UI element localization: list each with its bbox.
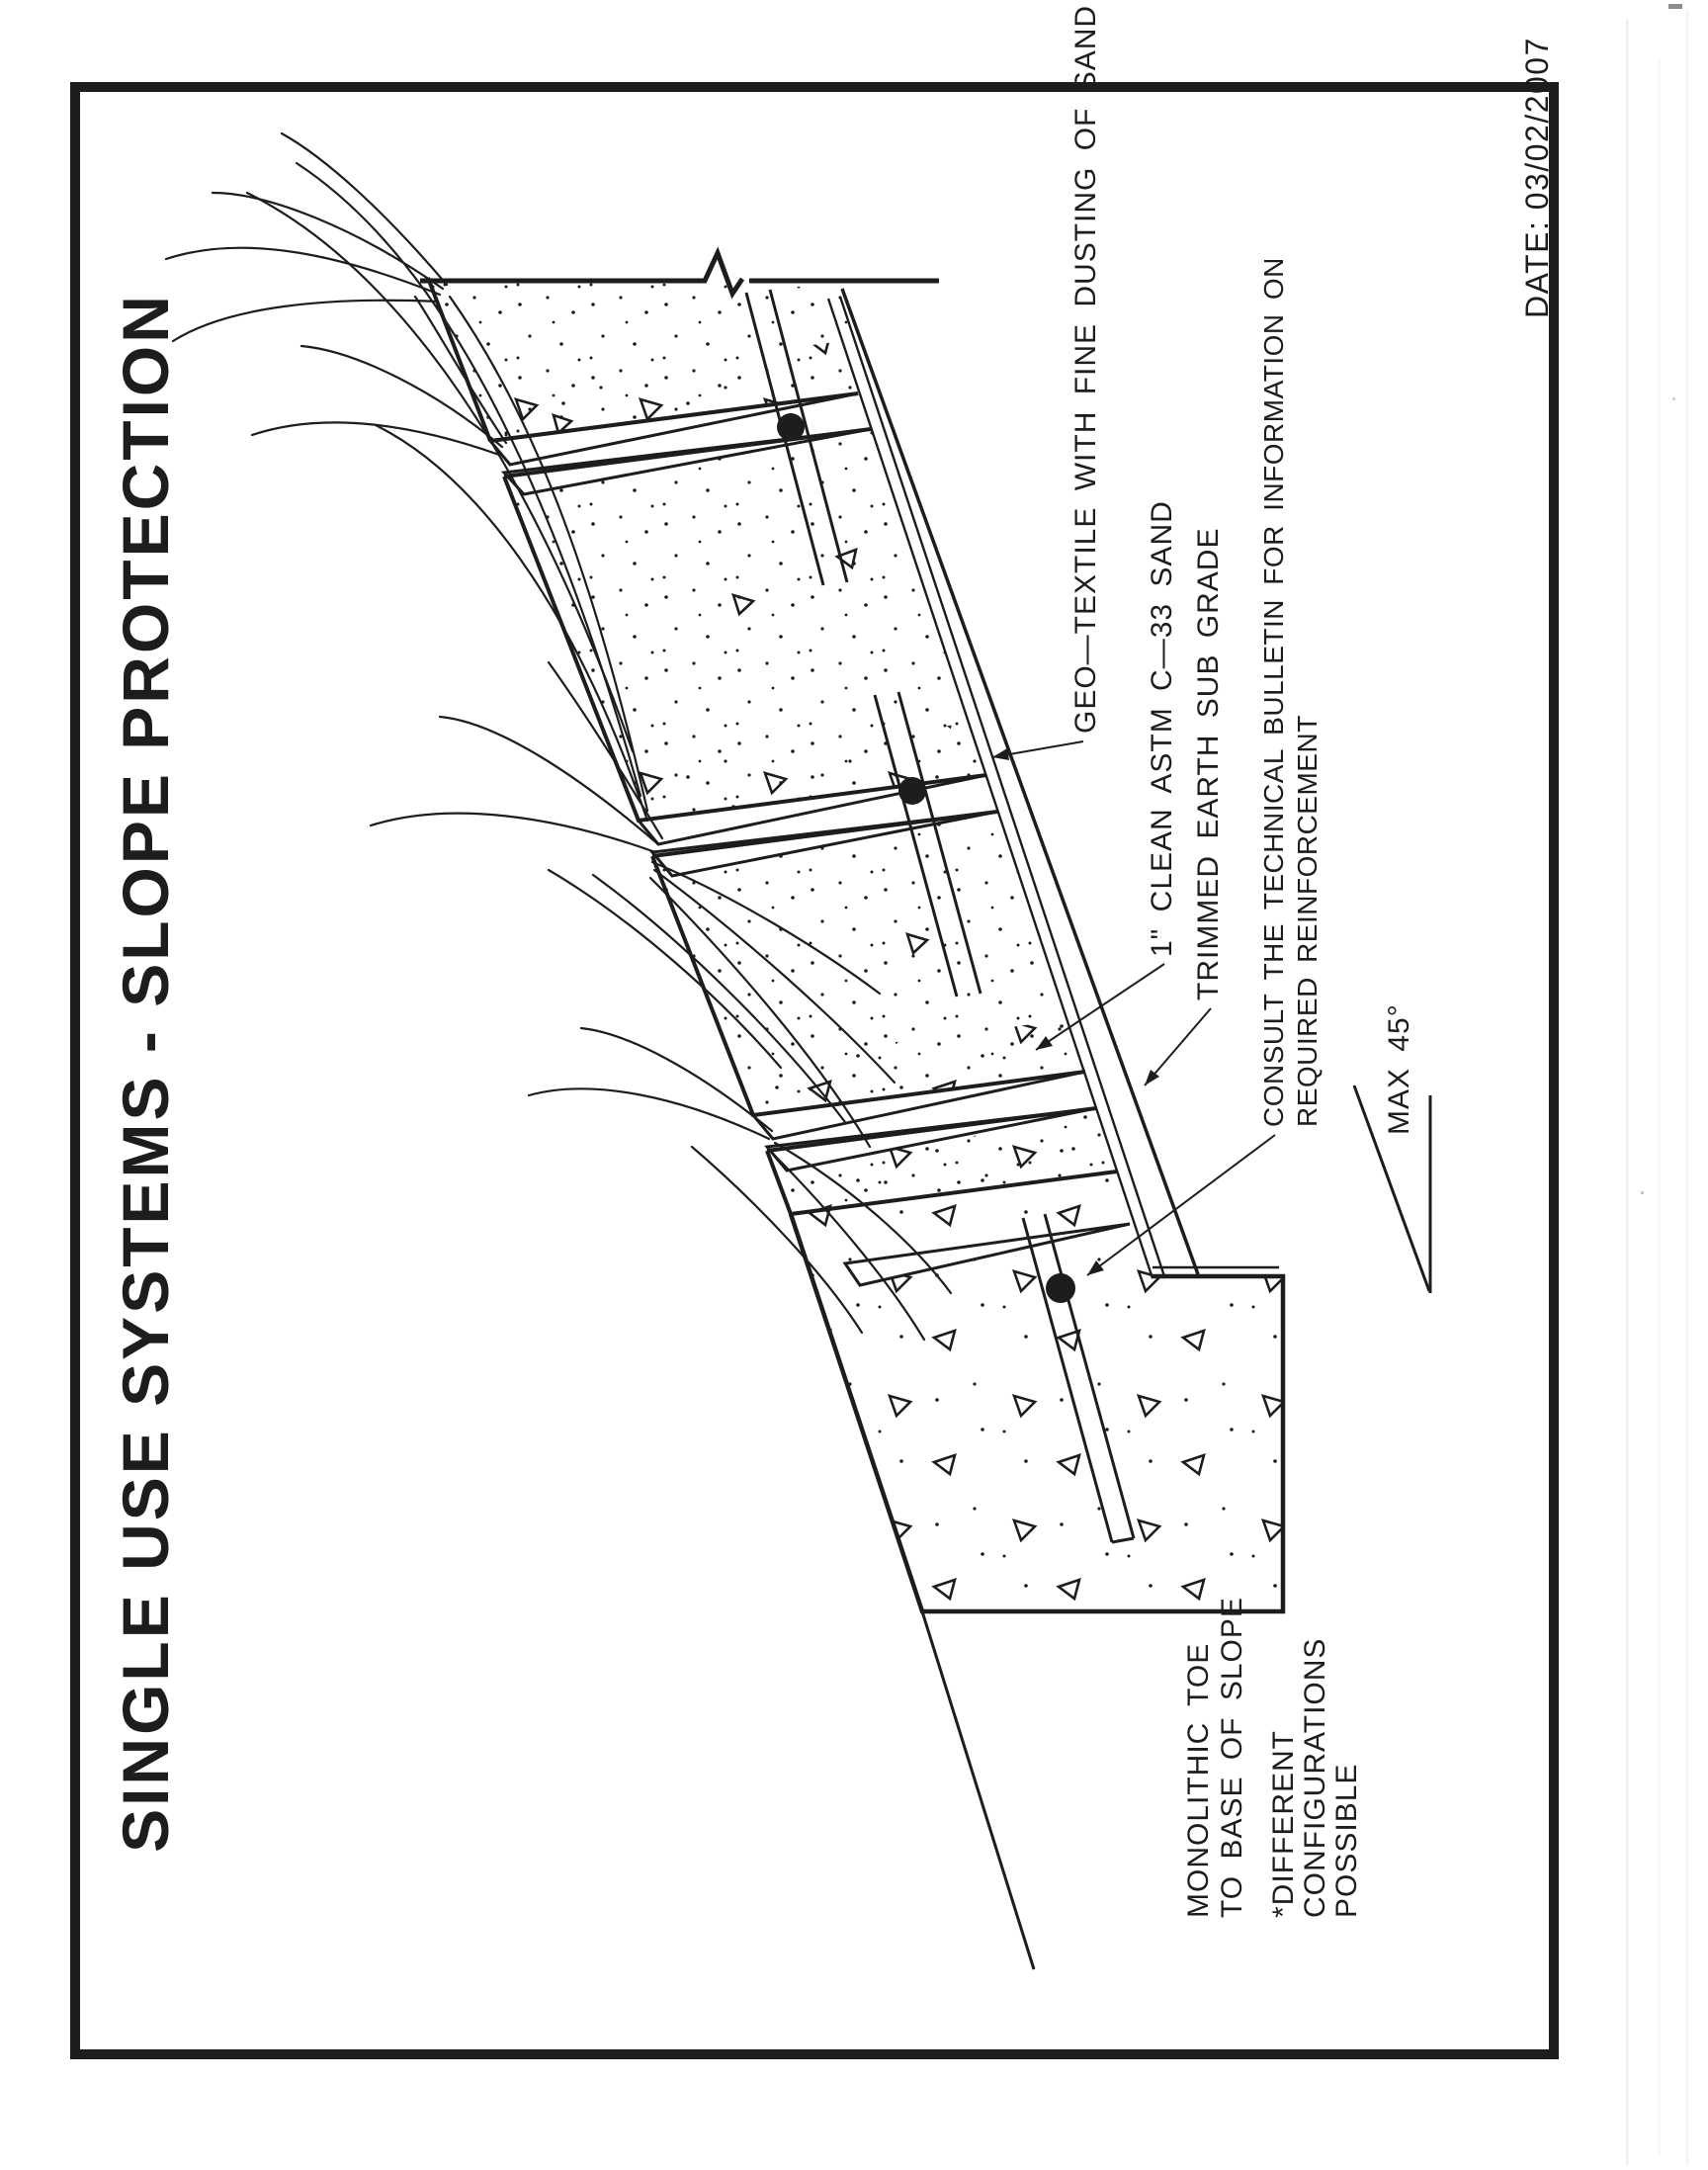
label-sand: 1" CLEAN ASTM C—33 SAND (1146, 500, 1178, 957)
label-note-line1: *DIFFERENT (1267, 1730, 1300, 1918)
label-consult-line2: REQUIRED REINFORCEMENT (1292, 715, 1323, 1127)
drawing-canvas: SINGLE USE SYSTEMS - SLOPE PROTECTION DA… (0, 0, 1708, 2170)
date-stamp: DATE: 03/02/2007 (1519, 37, 1555, 318)
label-toe-line1: MONOLITHIC TOE (1182, 1643, 1215, 1918)
label-geotextile: GEO—TEXTILE WITH FINE DUSTING OF SAND (1069, 5, 1102, 734)
label-note-line2: CONFIGURATIONS (1299, 1638, 1331, 1918)
label-note-line3: POSSIBLE (1330, 1764, 1363, 1918)
scanned-drawing-page: SINGLE USE SYSTEMS - SLOPE PROTECTION DA… (0, 0, 1708, 2170)
sheet-title: SINGLE USE SYSTEMS - SLOPE PROTECTION (109, 293, 182, 1853)
label-consult-line1: CONSULT THE TECHNICAL BULLETIN FOR INFOR… (1258, 257, 1289, 1127)
label-toe-line2: TO BASE OF SLOPE (1216, 1597, 1248, 1918)
label-max-angle: MAX 45° (1383, 1003, 1415, 1135)
label-subgrade: TRIMMED EARTH SUB GRADE (1192, 528, 1225, 1001)
